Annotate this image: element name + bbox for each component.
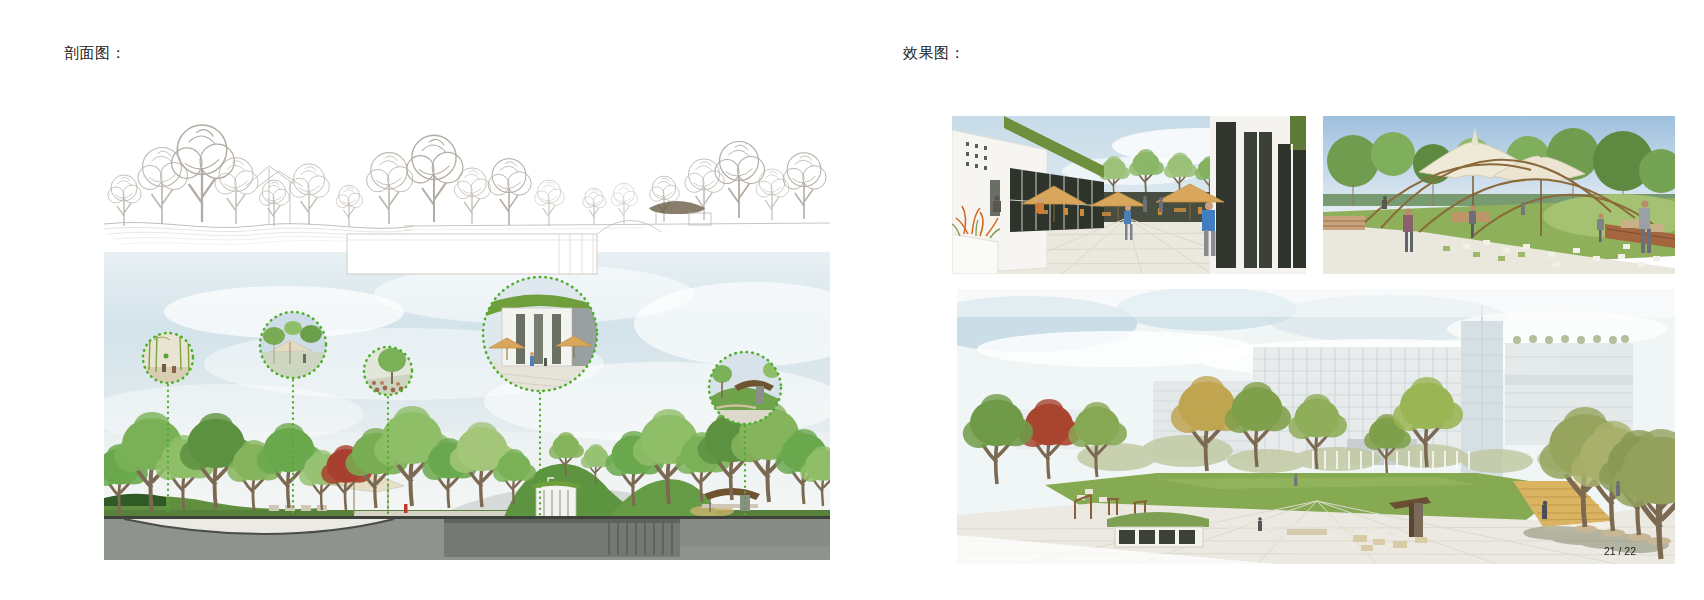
render-canopy-plaza-figure — [1323, 116, 1675, 274]
section-sketch-svg — [104, 116, 830, 276]
sunken-pavilion — [1107, 512, 1209, 547]
sketch-basement-box — [347, 234, 597, 274]
colored-section-svg — [104, 252, 830, 564]
right-building — [1210, 116, 1306, 274]
callout-canopy-walk — [260, 312, 326, 378]
render-campus-lawn-svg — [957, 289, 1675, 564]
page-number: 21 / 22 — [1540, 545, 1636, 557]
rendering-label: 效果图： — [903, 44, 965, 63]
colored-section-figure — [104, 252, 830, 564]
sketch-trees — [108, 125, 826, 226]
underground — [104, 516, 830, 560]
section-sketch-figure — [104, 116, 830, 276]
render-courtyard-svg — [952, 116, 1306, 274]
haze-top — [957, 289, 1675, 317]
render-campus-lawn-figure — [957, 289, 1675, 564]
section-drawing-label: 剖面图： — [64, 44, 126, 63]
render-courtyard-figure — [952, 116, 1306, 274]
presentation-page: { "labels": { "left_section": "剖面图：", "r… — [0, 0, 1704, 600]
render-canopy-plaza-svg — [1323, 116, 1675, 274]
